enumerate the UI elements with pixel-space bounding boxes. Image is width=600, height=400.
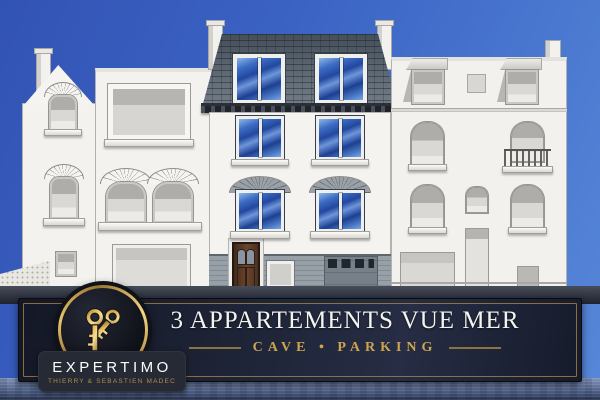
window-sill: [408, 227, 447, 234]
gold-rule-right: [449, 347, 501, 349]
window-sill: [230, 231, 290, 239]
balcony-slab: [502, 166, 553, 173]
arched-window: [511, 185, 544, 230]
garage-windows: [328, 259, 374, 268]
street-line: [391, 282, 567, 284]
small-window: [267, 261, 294, 288]
agency-name: EXPERTIMO: [52, 359, 172, 376]
agency-tagline: THIERRY & SEBASTIEN MADEC: [48, 378, 176, 385]
window: [316, 116, 364, 160]
small-window: [56, 252, 76, 276]
window-sill: [231, 159, 289, 166]
window-sill: [98, 222, 202, 231]
awning: [406, 58, 448, 70]
banner-title: 3 APPARTEMENTS VUE MER: [170, 306, 519, 336]
window-sill: [508, 227, 547, 234]
agency-badge: EXPERTIMO THIERRY & SEBASTIEN MADEC: [38, 351, 186, 392]
arched-window: [106, 182, 146, 223]
window-sill: [310, 231, 370, 239]
attic-window: [412, 70, 444, 104]
arched-window: [411, 185, 444, 230]
chimney-cap: [206, 20, 225, 26]
chimney-cap: [34, 48, 53, 54]
attic-molding: [391, 108, 567, 112]
window-sill: [43, 218, 85, 226]
small-arched-window: [466, 187, 488, 213]
arched-window: [153, 182, 193, 223]
dormer-window: [315, 54, 367, 104]
attic-window: [506, 70, 538, 104]
real-estate-poster: 3 APPARTEMENTS VUE MER CAVE • PARKING: [0, 0, 600, 400]
window-sill: [408, 164, 447, 171]
gold-rule-left: [189, 347, 241, 349]
window: [236, 190, 284, 232]
chimney-cap: [375, 20, 394, 26]
arched-window: [50, 177, 78, 219]
window: [316, 190, 364, 232]
small-square-window: [467, 74, 486, 93]
window-sill: [104, 139, 194, 147]
banner-content: 3 APPARTEMENTS VUE MER CAVE • PARKING: [123, 306, 567, 376]
banner-subtitle: CAVE • PARKING: [253, 340, 438, 356]
arched-window: [411, 122, 444, 168]
banner-subtitle-row: CAVE • PARKING: [189, 340, 502, 356]
door-lite: [237, 249, 246, 265]
picture-window: [108, 84, 190, 140]
awning: [500, 58, 542, 70]
window-sill: [311, 159, 369, 166]
window-sill: [44, 129, 82, 136]
arched-window: [49, 95, 77, 131]
window: [236, 116, 284, 160]
balcony-railing: [504, 149, 551, 167]
dormer-window: [233, 54, 285, 104]
door-lite: [246, 249, 255, 265]
